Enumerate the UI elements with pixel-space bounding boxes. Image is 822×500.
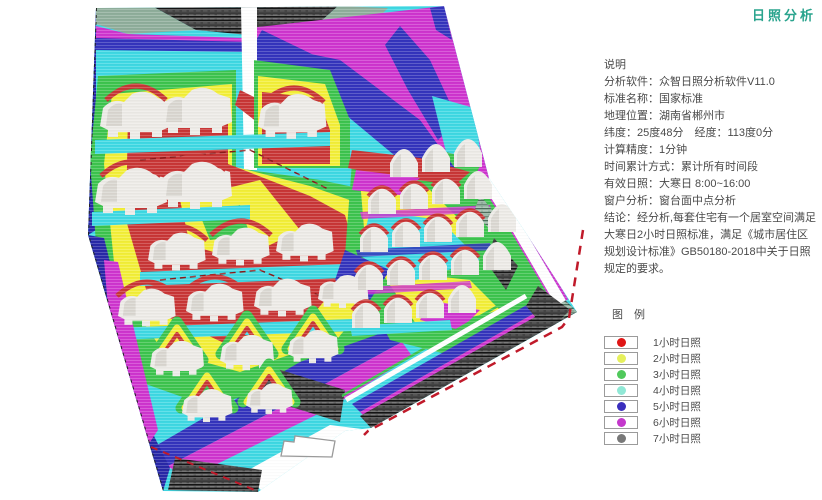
sunshine-analysis-sheet: 日照分析 说明 分析软件：众智日照分析软件V11.0 标准名称：国家标准 地理位… [0,0,822,500]
note-line-conclusion: 结论：经分析,每套住宅有一个居室空间满足大寒日2小时日照标准，满足《城市居住区规… [604,210,818,278]
sunshine-analysis-map [0,0,600,500]
legend-item-6h: 6小时日照 [604,414,818,430]
legend-dot-6h [617,418,626,427]
legend-dot-1h [617,338,626,347]
legend-label: 7小时日照 [653,431,701,446]
legend-swatch [604,368,638,381]
page-title: 日照分析 [752,5,816,24]
legend-swatch [604,336,638,349]
legend-dot-3h [617,370,626,379]
note-line-lat-lon: 纬度：25度48分 经度：113度0分 [604,125,818,142]
legend-dot-7h [617,434,626,443]
note-line-precision: 计算精度：1分钟 [604,142,818,159]
notes-heading: 说明 [604,57,818,74]
legend-label: 5小时日照 [653,399,701,414]
legend-heading: 图 例 [604,306,818,322]
note-line-window-analysis: 窗户分析：窗台面中点分析 [604,193,818,210]
legend-block: 图 例 1小时日照 2小时日照 3小时日照 4小时日照 5小时日照 [604,306,818,446]
legend-swatch [604,384,638,397]
legend-label: 3小时日照 [653,367,701,382]
note-line-location: 地理位置：湖南省郴州市 [604,108,818,125]
legend-dot-2h [617,354,626,363]
legend-item-1h: 1小时日照 [604,334,818,350]
note-line-software: 分析软件：众智日照分析软件V11.0 [604,74,818,91]
legend-label: 2小时日照 [653,351,701,366]
legend-item-5h: 5小时日照 [604,398,818,414]
legend-label: 1小时日照 [653,335,701,350]
note-line-standard: 标准名称：国家标准 [604,91,818,108]
legend-item-7h: 7小时日照 [604,430,818,446]
legend-label: 4小时日照 [653,383,701,398]
legend-swatch [604,352,638,365]
legend-swatch [604,432,638,445]
sunshine-raster-layers [80,0,590,500]
legend-dot-4h [617,386,626,395]
scanline-texture [80,0,590,500]
note-line-accumulation: 时间累计方式：累计所有时间段 [604,159,818,176]
legend-item-2h: 2小时日照 [604,350,818,366]
legend-item-4h: 4小时日照 [604,382,818,398]
legend-label: 6小时日照 [653,415,701,430]
legend-swatch [604,416,638,429]
notes-block: 说明 分析软件：众智日照分析软件V11.0 标准名称：国家标准 地理位置：湖南省… [604,57,818,278]
note-line-effective-sunshine: 有效日照：大寒日 8:00~16:00 [604,176,818,193]
info-panel: 日照分析 说明 分析软件：众智日照分析软件V11.0 标准名称：国家标准 地理位… [596,0,822,500]
legend-swatch [604,400,638,413]
legend-dot-5h [617,402,626,411]
legend-item-3h: 3小时日照 [604,366,818,382]
